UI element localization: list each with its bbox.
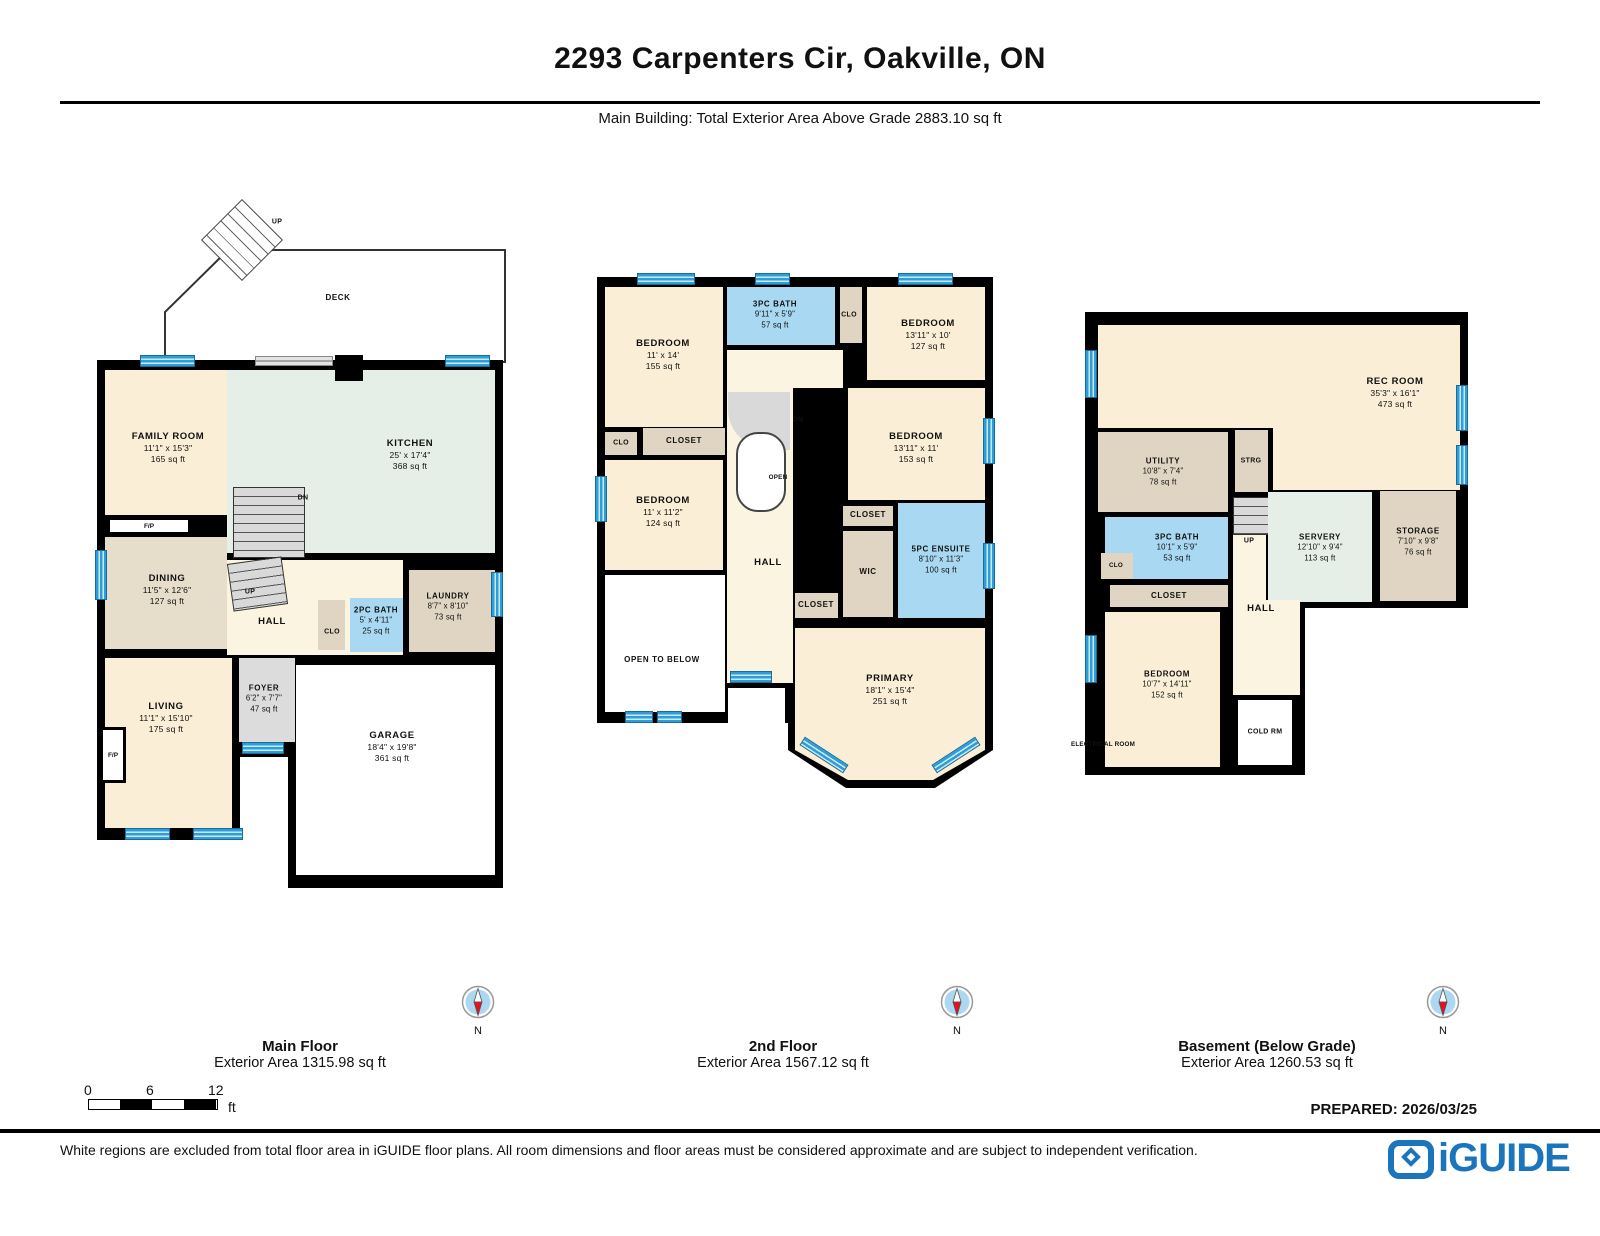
room-label-deck: DECK: [325, 293, 350, 303]
stairs-up-label: UP: [1244, 536, 1254, 545]
stair-open-well: [736, 432, 786, 512]
window: [595, 476, 607, 522]
window: [125, 828, 170, 840]
deck-outline: [163, 248, 507, 364]
room-label-2pc-bath: 2PC BATH5' x 4'11"25 sq ft: [354, 606, 398, 637]
floor-name: 2nd Floor: [697, 1038, 869, 1055]
fireplace-label: F/P: [144, 523, 154, 530]
room-label-laundry: LAUNDRY8'7" x 8'10"73 sq ft: [426, 592, 469, 623]
caption-2nd-floor: 2nd Floor Exterior Area 1567.12 sq ft: [697, 1038, 869, 1071]
window: [1456, 385, 1468, 431]
scale-tick-0: 0: [84, 1082, 92, 1098]
page-subtitle: Main Building: Total Exterior Area Above…: [0, 110, 1600, 127]
room-label-dining: DINING11'5" x 12'6"127 sq ft: [143, 573, 192, 607]
stairs-open-label: OPEN: [769, 474, 788, 482]
caption-basement: Basement (Below Grade) Exterior Area 126…: [1178, 1038, 1356, 1071]
room-label-closet: CLO: [1109, 562, 1123, 570]
room-label-rec-room: REC ROOM35'3" x 16'1"473 sq ft: [1366, 376, 1423, 410]
scale-unit: ft: [228, 1099, 236, 1115]
scale-tick-6: 6: [146, 1082, 154, 1098]
room-label-garage: GARAGE18'4" x 19'8"361 sq ft: [367, 730, 416, 764]
room-label-living: LIVING11'1" x 15'10"175 sq ft: [139, 701, 193, 735]
room-label-closet: CLO: [324, 627, 340, 636]
compass-n-label: N: [458, 1025, 498, 1037]
room-label-3pc-bath: 3PC BATH9'11" x 5'9"57 sq ft: [753, 300, 797, 331]
fireplace: F/P: [100, 727, 126, 783]
room-fill-rec-room: [1273, 428, 1460, 490]
window: [983, 418, 995, 464]
iguide-logo-icon: [1388, 1137, 1434, 1181]
window: [625, 711, 653, 723]
stairs-down: [233, 487, 305, 558]
compass-n-label: N: [937, 1025, 977, 1037]
floorplan-basement: REC ROOM35'3" x 16'1"473 sq ft UTILITY10…: [1085, 305, 1475, 780]
footer-divider: [0, 1129, 1600, 1133]
room-label-family-room: FAMILY ROOM11'1" x 15'3"165 sq ft: [132, 431, 205, 465]
window: [193, 828, 243, 840]
floor-name: Basement (Below Grade): [1178, 1038, 1356, 1055]
room-label-wic: WIC: [859, 567, 876, 577]
room-label-bedroom: BEDROOM13'11" x 11'153 sq ft: [889, 431, 943, 465]
scale-frame: [88, 1099, 218, 1110]
window: [445, 355, 490, 367]
room-label-cold-rm: COLD RM: [1248, 727, 1283, 736]
room-label-closet: CLO: [841, 310, 857, 319]
room-label-storage: STORAGE7'10" x 9'8"76 sq ft: [1396, 527, 1440, 558]
window: [755, 273, 790, 285]
window: [1456, 445, 1468, 485]
stairs-dn-label: DN: [298, 493, 309, 502]
room-label-hall: HALL: [754, 557, 782, 569]
prepared-date: PREPARED: 2026/03/25: [1311, 1101, 1477, 1118]
stairs-up-label: UP: [272, 217, 282, 226]
window: [95, 550, 107, 600]
iguide-logo-text: iGUIDE: [1438, 1136, 1570, 1181]
room-fill-closet: [318, 600, 345, 650]
compass-icon: [937, 984, 977, 1024]
window: [730, 671, 772, 683]
room-label-foyer: FOYER6'2" x 7'7"47 sq ft: [246, 684, 282, 715]
floorplan-main-floor: F/P F/P FAMILY ROOM11'1" x 15'3"165 sq f…: [95, 205, 505, 895]
caption-main-floor: Main Floor Exterior Area 1315.98 sq ft: [214, 1038, 386, 1071]
floor-area: Exterior Area 1567.12 sq ft: [697, 1055, 869, 1071]
room-label-closet: CLOSET: [850, 510, 886, 520]
room-label-hall: HALL: [1247, 603, 1275, 615]
stairs-dn-label: DN: [793, 415, 804, 424]
compass-basement: N: [1423, 984, 1463, 1037]
room-label-closet: CLOSET: [798, 600, 834, 610]
window: [1085, 635, 1097, 683]
room-fill-hall: [793, 350, 843, 388]
room-label-servery: SERVERY12'10" x 9'4"113 sq ft: [1297, 533, 1342, 564]
stairs-up-label: UP: [245, 587, 255, 596]
sliding-door: [255, 356, 333, 366]
room-label-primary: PRIMARY18'1" x 15'4"251 sq ft: [865, 673, 914, 707]
footer-disclaimer: White regions are excluded from total fl…: [60, 1142, 1198, 1158]
header-divider: [60, 101, 1540, 104]
window: [983, 543, 995, 589]
room-fill-open-to-below: [605, 575, 725, 712]
fireplace: F/P: [107, 517, 191, 535]
room-label-3pc-bath: 3PC BATH10'1" x 5'9"53 sq ft: [1155, 533, 1199, 564]
wall: [335, 355, 363, 381]
iguide-logo: iGUIDE: [1388, 1136, 1570, 1181]
room-label-open-to-below: OPEN TO BELOW: [624, 655, 700, 665]
window: [637, 273, 695, 285]
compass-icon: [1423, 984, 1463, 1024]
room-label-closet: CLOSET: [666, 436, 702, 446]
room-fill-garage: [296, 665, 495, 875]
compass-main-floor: N: [458, 984, 498, 1037]
room-label-bedroom: BEDROOM13'11" x 10'127 sq ft: [901, 318, 955, 352]
room-label-bedroom: BEDROOM11' x 11'2"124 sq ft: [636, 495, 690, 529]
room-label-5pc-ensuite: 5PC ENSUITE8'10" x 11'3"100 sq ft: [911, 545, 970, 576]
room-label-kitchen: KITCHEN25' x 17'4"368 sq ft: [387, 438, 433, 472]
compass-icon: [458, 984, 498, 1024]
floorplan-2nd-floor: BEDROOM11' x 14'155 sq ft 3PC BATH9'11" …: [595, 270, 1005, 810]
window: [140, 355, 195, 367]
window: [242, 742, 284, 754]
room-label-electrical-room: ELECTRICAL ROOM: [1071, 741, 1135, 749]
room-label-closet: CLOSET: [1151, 591, 1187, 601]
floor-name: Main Floor: [214, 1038, 386, 1055]
stairs-up: [1233, 497, 1269, 535]
floor-area: Exterior Area 1260.53 sq ft: [1178, 1055, 1356, 1071]
compass-n-label: N: [1423, 1025, 1463, 1037]
window: [1085, 350, 1097, 398]
room-label-bedroom: BEDROOM11' x 14'155 sq ft: [636, 338, 690, 372]
window: [491, 572, 503, 617]
exterior-patch: [728, 688, 785, 723]
room-label-closet: CLO: [613, 438, 629, 447]
scale-tick-12: 12: [208, 1082, 224, 1098]
window: [657, 711, 682, 723]
room-label-hall: HALL: [258, 616, 286, 628]
floor-area: Exterior Area 1315.98 sq ft: [214, 1055, 386, 1071]
compass-2nd-floor: N: [937, 984, 977, 1037]
fireplace-label: F/P: [108, 752, 118, 759]
page-title: 2293 Carpenters Cir, Oakville, ON: [0, 42, 1600, 76]
room-label-bedroom: BEDROOM10'7" x 14'11"152 sq ft: [1142, 670, 1191, 701]
room-label-utility: UTILITY10'8" x 7'4"78 sq ft: [1143, 457, 1184, 488]
room-label-strg: STRG: [1241, 456, 1262, 465]
window: [898, 273, 953, 285]
stairs-up: [227, 556, 288, 611]
